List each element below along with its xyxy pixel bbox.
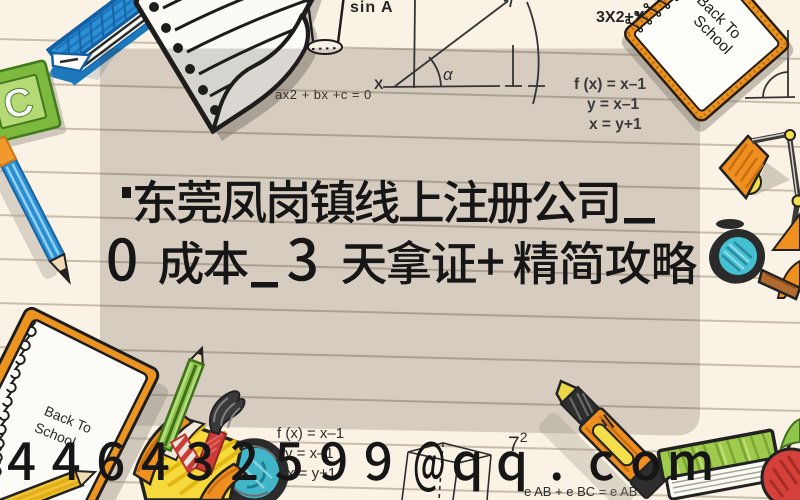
svg-text:f (x) = x–1: f (x) = x–1: [574, 76, 646, 93]
svg-text:ax2 + bx +c = 0: ax2 + bx +c = 0: [275, 87, 372, 102]
svg-text:α: α: [443, 65, 454, 84]
svg-text:X: X: [374, 76, 384, 92]
svg-text:sin A: sin A: [350, 0, 394, 16]
svg-text:f (x) = x–1: f (x) = x–1: [277, 425, 344, 442]
svg-text:x = y+1: x = y+1: [589, 116, 642, 133]
svg-text:y = x–1: y = x–1: [587, 96, 640, 113]
